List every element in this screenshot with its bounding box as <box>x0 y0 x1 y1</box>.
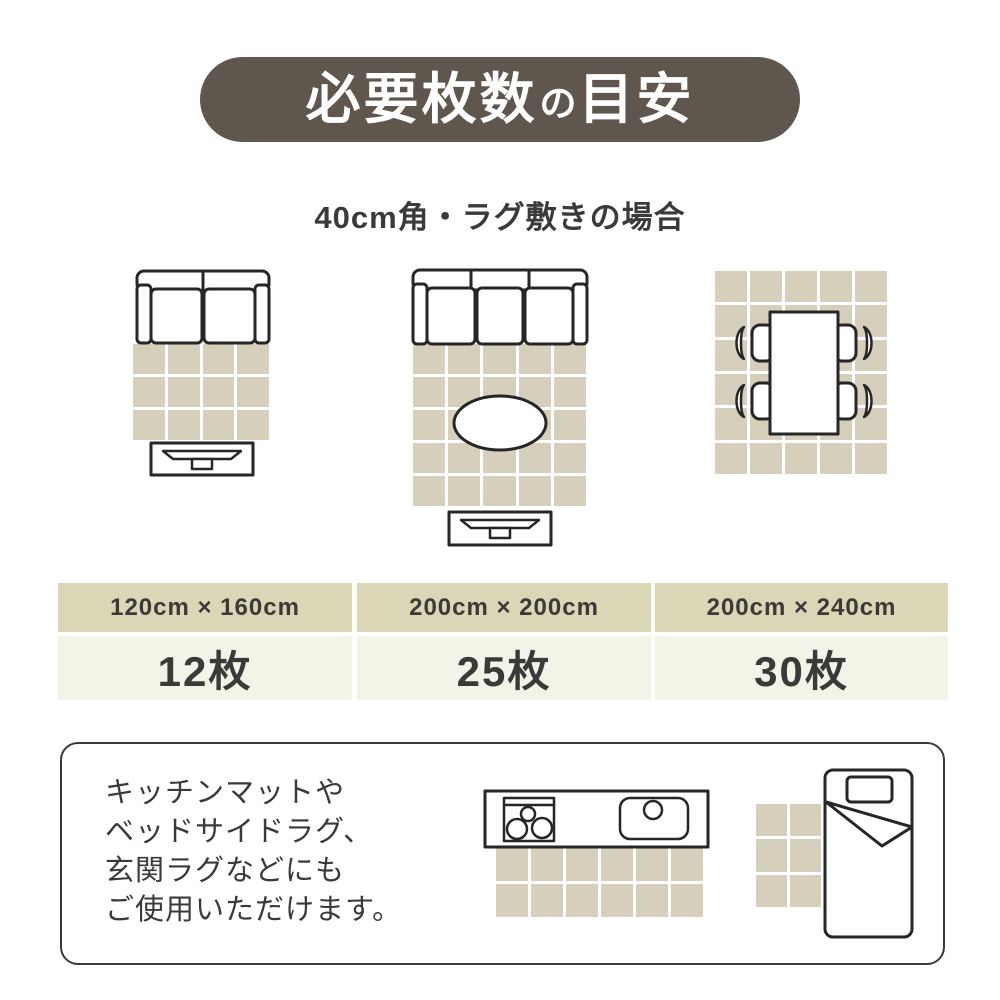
kitchen-illustration <box>483 789 711 919</box>
size-column-3: 200cm × 240cm 30枚 <box>655 583 948 700</box>
bed-illustration <box>754 767 916 939</box>
size-column-2: 200cm × 200cm 25枚 <box>357 583 651 700</box>
note-line: キッチンマットや <box>105 774 402 813</box>
sofa-2-seater-icon <box>137 271 269 343</box>
note-line: ご使用いただけます。 <box>105 891 402 930</box>
page-title-main: 必要枚数 <box>305 72 537 127</box>
furniture-overlay <box>410 268 590 550</box>
chair-icon <box>737 325 775 361</box>
tv-stand-icon <box>151 443 253 475</box>
note-line: ベッドサイドラグ、 <box>105 813 402 852</box>
kitchen-overlay <box>483 789 711 919</box>
usage-note-text: キッチンマットや ベッドサイドラグ、 玄関ラグなどにも ご使用いただけます。 <box>105 774 402 930</box>
pillow-icon <box>847 777 892 802</box>
chair-icon <box>834 383 872 419</box>
furniture-overlay <box>712 268 892 478</box>
bed-overlay <box>754 767 916 939</box>
stove-icon <box>504 798 554 841</box>
oval-table-icon <box>454 396 546 450</box>
note-line: 玄関ラグなどにも <box>105 852 402 891</box>
sofa-3-seater-icon <box>413 270 587 344</box>
infographic-canvas: 必要枚数の目安 40cm角・ラグ敷きの場合 <box>0 0 1000 1000</box>
diagram-living-small <box>130 268 275 480</box>
page-title-particle: の <box>540 85 577 122</box>
size-label: 200cm × 200cm <box>357 583 651 632</box>
sink-icon <box>620 798 688 839</box>
subtitle: 40cm角・ラグ敷きの場合 <box>0 192 1000 237</box>
tile-count: 12枚 <box>58 636 352 700</box>
tile-count: 25枚 <box>357 636 651 700</box>
tile-count: 30枚 <box>655 636 948 700</box>
page-title-sub: 目安 <box>579 72 695 127</box>
diagram-dining <box>712 268 892 478</box>
size-label: 200cm × 240cm <box>655 583 948 632</box>
diagram-living-large <box>410 268 590 550</box>
header-pill: 必要枚数の目安 <box>200 57 800 142</box>
dining-table-icon <box>770 312 838 434</box>
chair-icon <box>834 325 872 361</box>
chair-icon <box>737 383 775 419</box>
tv-stand-icon <box>449 512 551 545</box>
size-column-1: 120cm × 160cm 12枚 <box>58 583 352 700</box>
furniture-overlay <box>130 268 275 480</box>
size-label: 120cm × 160cm <box>58 583 352 632</box>
